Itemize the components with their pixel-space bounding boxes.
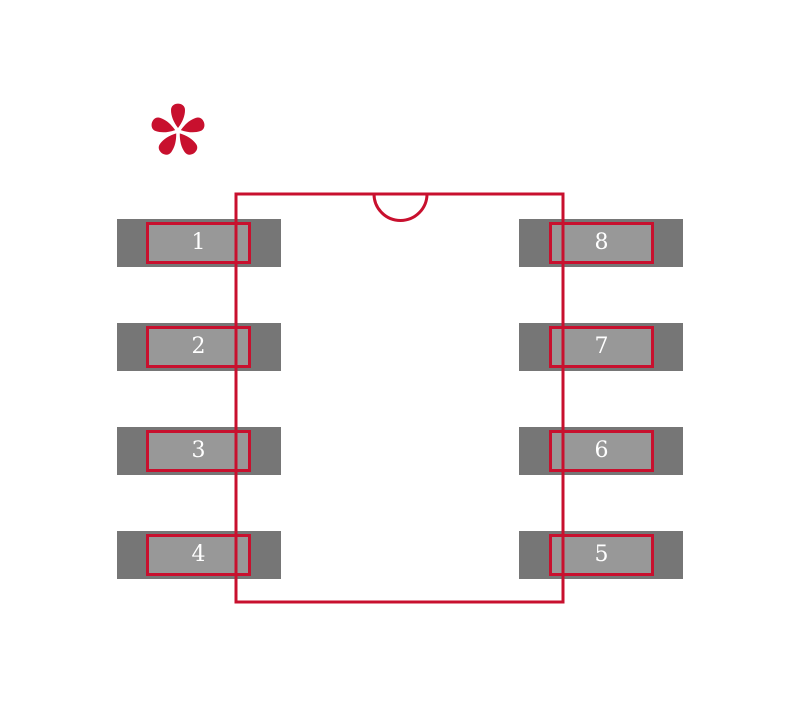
pad-6: 6 [519,427,683,475]
pad-3-number: 3 [192,440,206,462]
pad-4-number: 4 [192,544,206,566]
pad-5: 5 [519,531,683,579]
pin1-notch [374,194,427,220]
pad-4: 4 [117,531,281,579]
footprint-canvas: 1 2 3 4 8 7 6 5 [0,0,800,707]
body-rectangle [236,194,563,602]
pad-2-inner: 2 [146,326,251,368]
pad-1-inner: 1 [146,222,251,264]
pad-2: 2 [117,323,281,371]
pad-7: 7 [519,323,683,371]
pad-4-inner: 4 [146,534,251,576]
pad-6-inner: 6 [549,430,654,472]
pad-6-number: 6 [595,440,609,462]
pad-8: 8 [519,219,683,267]
pad-2-number: 2 [192,336,206,358]
pad-7-number: 7 [595,336,609,358]
pad-7-inner: 7 [549,326,654,368]
pad-5-number: 5 [595,544,609,566]
pad-8-number: 8 [595,232,609,254]
pad-3-inner: 3 [146,430,251,472]
pad-1: 1 [117,219,281,267]
pad-1-number: 1 [192,232,206,254]
pad-5-inner: 5 [549,534,654,576]
pad-3: 3 [117,427,281,475]
pad-8-inner: 8 [549,222,654,264]
